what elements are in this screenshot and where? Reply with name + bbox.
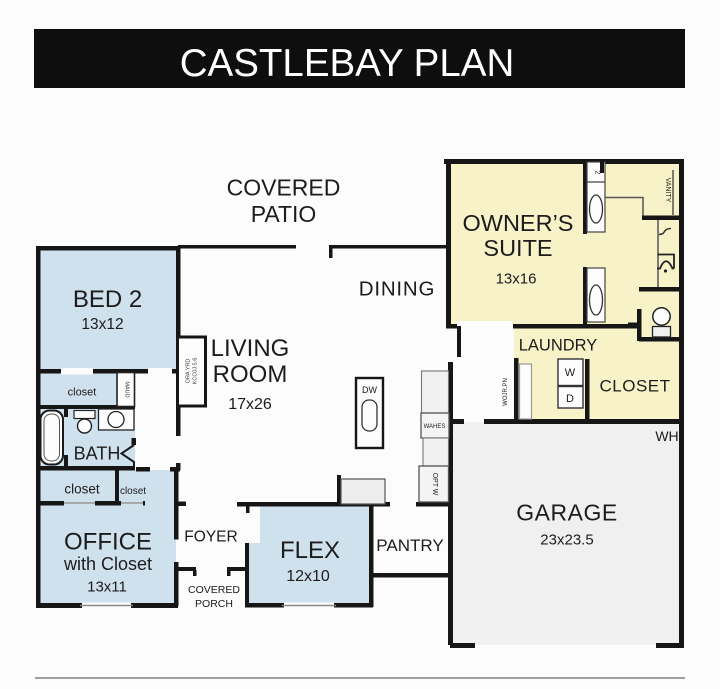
svg-text:GARAGE: GARAGE xyxy=(516,500,617,526)
svg-text:OWNER’S: OWNER’S xyxy=(463,210,574,236)
svg-text:VANITY: VANITY xyxy=(664,178,671,203)
svg-text:W: W xyxy=(565,367,576,379)
svg-text:OFFICE: OFFICE xyxy=(64,529,152,556)
svg-text:13x11: 13x11 xyxy=(87,579,127,596)
svg-text:LIVING: LIVING xyxy=(211,335,290,362)
svg-text:FOYER: FOYER xyxy=(184,529,237,546)
svg-text:WOJR.PN: WOJR.PN xyxy=(503,378,509,406)
svg-text:DINING: DINING xyxy=(359,278,436,301)
svg-text:13x12: 13x12 xyxy=(81,316,123,333)
svg-text:WH: WH xyxy=(655,428,678,444)
svg-text:CASTLEBAY PLAN: CASTLEBAY PLAN xyxy=(180,42,515,85)
svg-text:17x26: 17x26 xyxy=(228,396,272,413)
svg-text:COVERED: COVERED xyxy=(227,175,341,201)
svg-text:with Closet: with Closet xyxy=(63,554,152,574)
svg-text:BED 2: BED 2 xyxy=(73,286,142,313)
svg-text:23x23.5: 23x23.5 xyxy=(540,532,593,549)
svg-text:closet: closet xyxy=(120,486,146,497)
svg-text:WAHES: WAHES xyxy=(424,424,446,430)
svg-text:OPT W: OPT W xyxy=(431,473,438,496)
svg-text:D: D xyxy=(566,393,574,405)
svg-text:12x10: 12x10 xyxy=(286,568,330,585)
svg-text:2: 2 xyxy=(594,171,601,175)
svg-text:DW: DW xyxy=(362,385,377,395)
svg-text:LAUNDRY: LAUNDRY xyxy=(519,337,598,355)
svg-text:COVERED: COVERED xyxy=(188,584,240,596)
svg-text:closet: closet xyxy=(64,482,100,497)
svg-text:BATH: BATH xyxy=(74,444,121,464)
svg-text:ORA YRD: ORA YRD xyxy=(186,359,192,384)
svg-text:SUITE: SUITE xyxy=(483,235,552,261)
svg-text:MAUD: MAUD xyxy=(124,381,130,397)
svg-text:FLEX: FLEX xyxy=(280,537,340,564)
svg-text:PORCH: PORCH xyxy=(195,598,233,610)
svg-text:CLOSET: CLOSET xyxy=(599,377,670,396)
svg-text:13x16: 13x16 xyxy=(496,271,537,288)
svg-text:closet: closet xyxy=(68,387,97,399)
svg-text:ROOM: ROOM xyxy=(213,361,288,388)
svg-text:PANTRY: PANTRY xyxy=(376,536,443,555)
svg-text:PATIO: PATIO xyxy=(251,201,317,227)
svg-text:KCC0J.5.6: KCC0J.5.6 xyxy=(193,358,199,385)
